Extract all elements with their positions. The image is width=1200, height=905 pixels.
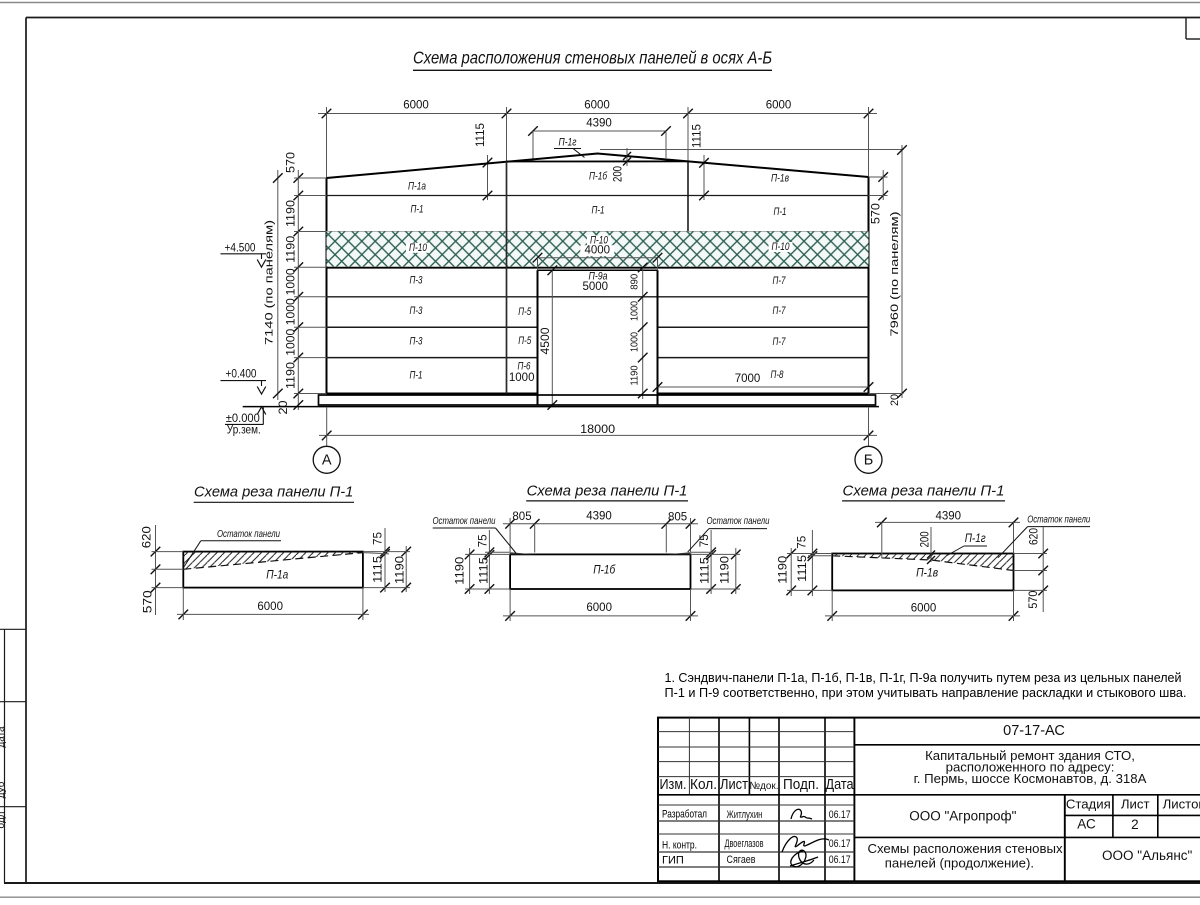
svg-text:АС: АС xyxy=(1077,817,1096,832)
svg-text:75: 75 xyxy=(796,536,808,549)
svg-text:Остаток панели: Остаток панели xyxy=(433,516,496,527)
svg-text:570: 570 xyxy=(1028,591,1040,609)
svg-text:805: 805 xyxy=(668,511,687,523)
svg-text:1115: 1115 xyxy=(700,557,712,584)
svg-text:1115: 1115 xyxy=(692,124,704,148)
svg-text:дуб: дуб xyxy=(0,781,7,798)
svg-text:Б: Б xyxy=(864,452,874,468)
svg-text:П-1 и П-9 соответственно, при: П-1 и П-9 соответственно, при этом учиты… xyxy=(665,685,1187,700)
svg-text:г. Пермь, шоссе Космонавтов, д: г. Пермь, шоссе Космонавтов, д. 318А xyxy=(914,771,1147,786)
svg-text:1190: 1190 xyxy=(720,556,732,584)
svg-text:1115: 1115 xyxy=(373,556,385,583)
svg-text:Схема реза панели П-1: Схема реза панели П-1 xyxy=(843,483,1005,499)
svg-text:+4.500: +4.500 xyxy=(225,242,256,254)
svg-text:П-7: П-7 xyxy=(773,275,787,287)
svg-text:Кол.: Кол. xyxy=(690,777,717,793)
svg-text:7000: 7000 xyxy=(735,373,761,385)
svg-text:П-5: П-5 xyxy=(518,306,532,318)
svg-text:Ур.зем.: Ур.зем. xyxy=(227,425,261,437)
svg-text:П-7: П-7 xyxy=(773,336,787,348)
svg-text:П-3: П-3 xyxy=(410,275,424,287)
svg-text:6000: 6000 xyxy=(257,601,283,613)
svg-text:+0.400: +0.400 xyxy=(226,368,257,380)
svg-text:6000: 6000 xyxy=(766,100,792,112)
svg-text:П-8: П-8 xyxy=(771,369,785,381)
svg-text:890: 890 xyxy=(630,273,641,289)
svg-text:П-5: П-5 xyxy=(518,335,532,347)
svg-text:1190: 1190 xyxy=(394,556,406,584)
svg-text:П-1г: П-1г xyxy=(559,137,577,149)
svg-text:П-3: П-3 xyxy=(410,305,424,317)
svg-text:7140 (по панелям): 7140 (по панелям) xyxy=(264,220,276,345)
svg-text:П-7: П-7 xyxy=(773,305,787,317)
svg-text:4500: 4500 xyxy=(540,328,552,355)
svg-text:570: 570 xyxy=(871,203,883,224)
svg-text:дата: дата xyxy=(0,726,7,748)
svg-text:1115: 1115 xyxy=(478,557,490,584)
svg-text:П-1: П-1 xyxy=(592,205,605,217)
svg-text:Схемы расположения стеновых: Схемы расположения стеновых xyxy=(867,841,1063,856)
svg-text:П-10: П-10 xyxy=(772,241,791,253)
svg-text:75: 75 xyxy=(373,532,385,545)
svg-text:П-3: П-3 xyxy=(410,336,424,348)
svg-text:4390: 4390 xyxy=(586,118,612,130)
svg-text:18000: 18000 xyxy=(580,422,615,436)
svg-text:Дата: Дата xyxy=(826,777,855,793)
svg-text:П-1в: П-1в xyxy=(771,172,789,184)
svg-text:570: 570 xyxy=(142,590,154,613)
svg-text:Лист: Лист xyxy=(720,777,748,793)
svg-text:6000: 6000 xyxy=(586,602,612,614)
svg-text:П-10: П-10 xyxy=(409,242,428,254)
svg-text:Разработал: Разработал xyxy=(662,809,707,821)
svg-text:805: 805 xyxy=(512,511,531,523)
svg-text:П-1а: П-1а xyxy=(408,180,426,192)
svg-text:1190: 1190 xyxy=(286,236,298,263)
svg-text:1000: 1000 xyxy=(286,268,298,295)
svg-text:20: 20 xyxy=(278,401,290,415)
svg-text:75: 75 xyxy=(478,534,490,547)
svg-text:1115: 1115 xyxy=(475,123,487,147)
svg-text:Изм.: Изм. xyxy=(660,777,687,793)
svg-text:1000: 1000 xyxy=(286,298,298,325)
svg-text:06.17: 06.17 xyxy=(829,838,851,850)
svg-text:1190: 1190 xyxy=(286,362,298,389)
svg-text:4390: 4390 xyxy=(936,510,962,522)
svg-text:200: 200 xyxy=(613,166,625,182)
svg-text:П-1г: П-1г xyxy=(965,533,986,545)
svg-text:П-1: П-1 xyxy=(774,206,787,218)
svg-text:П-1: П-1 xyxy=(410,370,423,382)
svg-text:6000: 6000 xyxy=(584,100,610,112)
svg-text:75: 75 xyxy=(699,534,711,547)
svg-text:Схема реза панели П-1: Схема реза панели П-1 xyxy=(194,485,353,501)
svg-text:Житлухин: Житлухин xyxy=(727,809,763,821)
svg-text:6000: 6000 xyxy=(911,602,937,614)
svg-text:П-1а: П-1а xyxy=(266,569,288,581)
svg-text:5000: 5000 xyxy=(583,281,609,293)
svg-text:1000: 1000 xyxy=(630,301,641,321)
svg-text:Схема реза панели П-1: Схема реза панели П-1 xyxy=(527,483,688,499)
svg-text:Остаток панели: Остаток панели xyxy=(1027,515,1090,526)
svg-text:А: А xyxy=(322,452,332,468)
svg-text:Подп.: Подп. xyxy=(783,777,819,793)
svg-text:±0.000: ±0.000 xyxy=(226,413,260,425)
svg-text:Лист: Лист xyxy=(1121,797,1150,812)
svg-text:4000: 4000 xyxy=(585,245,611,257)
svg-text:Остаток панели: Остаток панели xyxy=(707,516,770,527)
svg-text:1000: 1000 xyxy=(630,332,641,352)
svg-text:П-1: П-1 xyxy=(411,203,424,215)
svg-text:4390: 4390 xyxy=(586,511,612,523)
svg-text:Сягаев: Сягаев xyxy=(727,854,756,866)
svg-text:07-17-АС: 07-17-АС xyxy=(1003,723,1065,739)
svg-text:1190: 1190 xyxy=(286,200,298,227)
svg-text:№док.: №док. xyxy=(750,780,779,792)
svg-text:620: 620 xyxy=(1029,528,1041,545)
svg-text:одл: одл xyxy=(0,811,7,828)
svg-text:1190: 1190 xyxy=(777,556,789,584)
svg-text:ООО "Альянс": ООО "Альянс" xyxy=(1102,848,1192,863)
svg-text:Листов: Листов xyxy=(1163,797,1200,812)
svg-text:06.17: 06.17 xyxy=(829,809,851,821)
svg-text:П-1б: П-1б xyxy=(593,565,615,577)
svg-text:ГИП: ГИП xyxy=(662,855,684,867)
svg-text:570: 570 xyxy=(286,152,298,173)
svg-text:П-1в: П-1в xyxy=(916,567,938,579)
svg-text:ООО "Агропроф": ООО "Агропроф" xyxy=(909,809,1016,824)
svg-text:200: 200 xyxy=(920,531,932,547)
svg-text:Стадия: Стадия xyxy=(1066,797,1111,812)
svg-text:Двоеглазов: Двоеглазов xyxy=(725,838,764,850)
svg-text:6000: 6000 xyxy=(403,100,429,112)
svg-text:7960 (по панелям): 7960 (по панелям) xyxy=(889,212,901,337)
svg-text:1000: 1000 xyxy=(286,329,298,356)
svg-text:1190: 1190 xyxy=(454,557,466,585)
svg-text:Схема расположения стеновых па: Схема расположения стеновых панелей в ос… xyxy=(413,48,772,68)
svg-text:панелей (продолжение).: панелей (продолжение). xyxy=(885,856,1034,871)
svg-text:П-10: П-10 xyxy=(590,234,609,246)
svg-text:1000: 1000 xyxy=(509,372,535,384)
svg-text:1190: 1190 xyxy=(630,365,641,385)
svg-text:П-6: П-6 xyxy=(518,361,532,373)
svg-text:1115: 1115 xyxy=(797,555,809,582)
svg-text:06.17: 06.17 xyxy=(829,854,851,866)
svg-text:Остаток панели: Остаток панели xyxy=(217,529,280,540)
svg-text:1. Сэндвич-панели П-1а, П-1б,: 1. Сэндвич-панели П-1а, П-1б, П-1в, П-1г… xyxy=(665,670,1182,685)
svg-text:620: 620 xyxy=(142,526,154,548)
svg-text:Н. контр.: Н. контр. xyxy=(662,840,697,852)
svg-text:20: 20 xyxy=(889,394,901,406)
svg-text:2: 2 xyxy=(1131,817,1139,832)
svg-text:П-1б: П-1б xyxy=(589,171,608,183)
